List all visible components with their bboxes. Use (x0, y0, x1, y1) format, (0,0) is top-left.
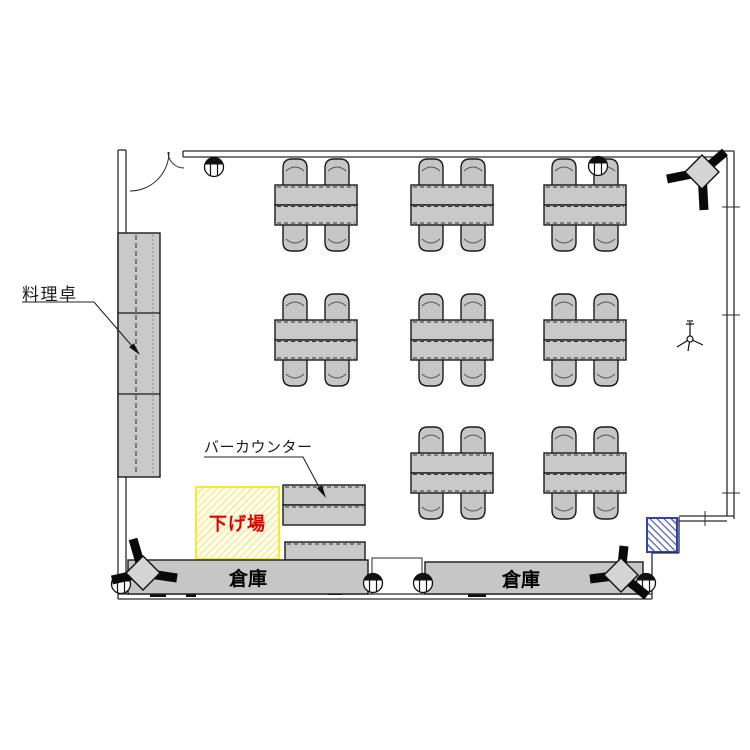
chair (552, 223, 576, 251)
table-top (411, 453, 493, 473)
ceiling-fixture-icon (589, 156, 608, 175)
chair (419, 358, 443, 386)
ceiling-fixture-icon (414, 573, 433, 592)
table-top (275, 185, 357, 205)
chair (283, 294, 307, 322)
storage-left-label: 倉庫 (228, 567, 267, 590)
floorplan-canvas: 下げ場 (0, 0, 750, 750)
chair (552, 491, 576, 519)
chair (461, 358, 485, 386)
table-top (275, 205, 357, 225)
table-top (411, 340, 493, 360)
speaker-icon (667, 152, 725, 210)
table-unit (544, 159, 626, 251)
chair (594, 223, 618, 251)
table-unit (275, 294, 357, 386)
table-unit (544, 294, 626, 386)
cooking-table-cabinet (118, 233, 160, 477)
chair (552, 358, 576, 386)
chair (461, 427, 485, 455)
chair (419, 294, 443, 322)
dining-tables (275, 159, 626, 519)
table-top (544, 340, 626, 360)
chair (552, 427, 576, 455)
floorplan-drawing: 倉庫 倉庫 (0, 0, 750, 750)
chair (461, 223, 485, 251)
ceiling-fixture-icon (364, 573, 383, 592)
table-unit (275, 159, 357, 251)
bar-counter-leader (204, 457, 319, 487)
cabinet-body (118, 233, 160, 477)
cooking-table-leader (22, 302, 132, 346)
chair (419, 159, 443, 187)
door-swing-arc (130, 152, 169, 191)
chair (552, 294, 576, 322)
chair (594, 427, 618, 455)
chair (419, 223, 443, 251)
table-unit (411, 159, 493, 251)
chair (594, 358, 618, 386)
bar-counter-block (285, 542, 365, 560)
chair (283, 223, 307, 251)
table-unit (411, 294, 493, 386)
ceiling-fixture-icon (205, 157, 224, 176)
storage-units: 倉庫 倉庫 (128, 560, 643, 594)
chair (283, 358, 307, 386)
bar-counter-block (283, 505, 365, 525)
chair (325, 223, 349, 251)
mic-stand-icon (677, 321, 703, 351)
table-top (544, 320, 626, 340)
table-unit (544, 427, 626, 519)
table-top (544, 473, 626, 493)
table-top (411, 473, 493, 493)
table-top (544, 185, 626, 205)
chair (594, 491, 618, 519)
bar-counter-label: バーカウンター (204, 436, 313, 457)
storage-right-label: 倉庫 (501, 568, 540, 591)
table-top (275, 320, 357, 340)
bar-counter (283, 485, 365, 560)
table-top (411, 320, 493, 340)
chair (283, 159, 307, 187)
chair (325, 358, 349, 386)
table-top (275, 340, 357, 360)
chair (594, 294, 618, 322)
chair (419, 491, 443, 519)
chair (461, 491, 485, 519)
table-top (411, 205, 493, 225)
table-top (411, 185, 493, 205)
chair (552, 159, 576, 187)
chair (461, 159, 485, 187)
chair (461, 294, 485, 322)
chair (325, 159, 349, 187)
table-top (544, 453, 626, 473)
table-top (544, 205, 626, 225)
cooking-table-label: 料理卓 (22, 280, 78, 305)
chair (325, 294, 349, 322)
door-leaf-arc (168, 152, 184, 168)
table-unit (411, 427, 493, 519)
chair (419, 427, 443, 455)
